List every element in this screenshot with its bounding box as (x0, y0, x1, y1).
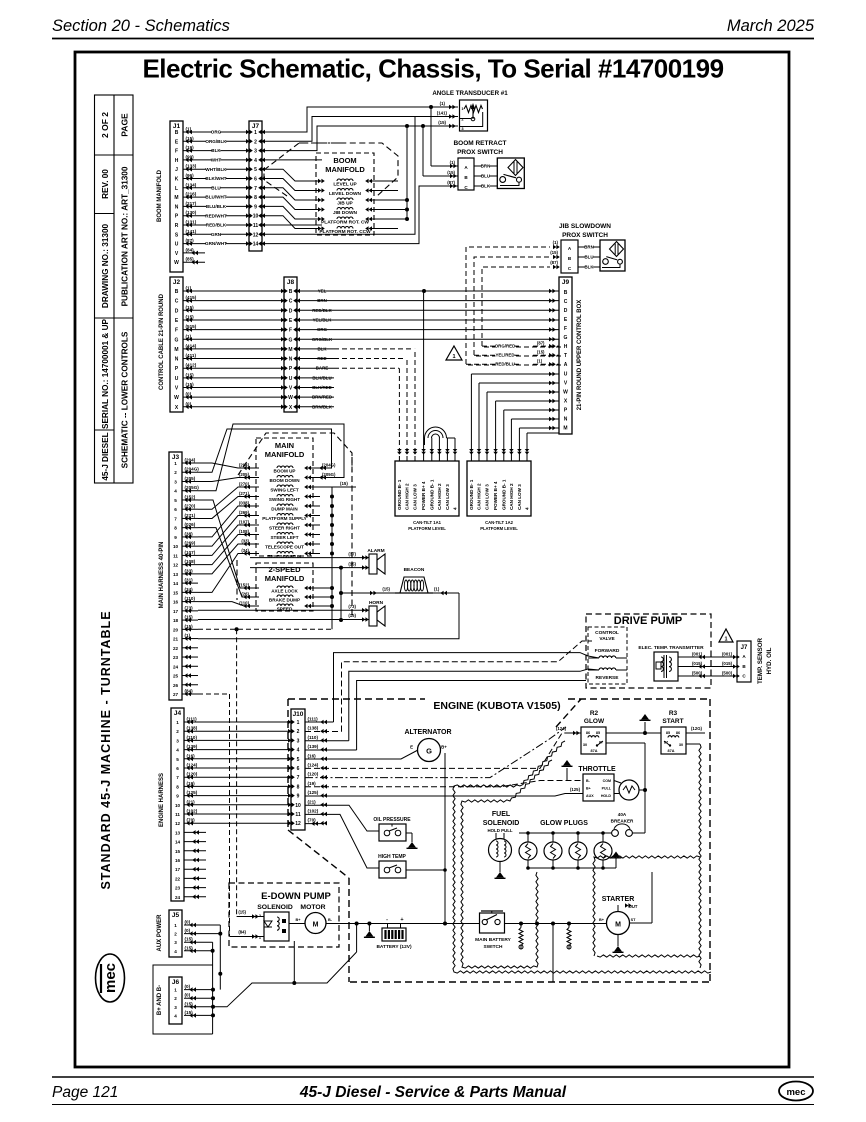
svg-text:M: M (288, 347, 292, 353)
svg-text:2: 2 (297, 729, 300, 735)
svg-text:X: X (289, 405, 293, 411)
svg-text:M: M (615, 922, 621, 929)
svg-text:(269): (269) (239, 510, 250, 515)
svg-text:(139): (139) (308, 744, 319, 749)
svg-text:(33): (33) (241, 539, 249, 544)
svg-text:F: F (564, 326, 567, 332)
svg-text:N: N (289, 357, 293, 363)
svg-text:ELEC. TEMP. TRANSMITTER: ELEC. TEMP. TRANSMITTER (638, 645, 704, 651)
svg-text:CAN LOW 3: CAN LOW 3 (517, 484, 522, 510)
svg-text:K: K (175, 177, 179, 183)
svg-text:27: 27 (173, 692, 179, 697)
svg-text:86: 86 (586, 731, 590, 735)
svg-text:J8: J8 (287, 279, 295, 286)
svg-text:PROX SWITCH: PROX SWITCH (457, 149, 503, 156)
svg-text:U: U (175, 376, 179, 382)
svg-text:1: 1 (297, 720, 300, 726)
svg-text:30: 30 (583, 743, 587, 747)
svg-text:15: 15 (173, 590, 179, 595)
svg-text:4: 4 (176, 748, 179, 753)
svg-text:R2: R2 (590, 710, 599, 717)
svg-text:V: V (175, 386, 179, 392)
svg-text:4: 4 (453, 507, 458, 510)
svg-text:BRAKE DUMP: BRAKE DUMP (269, 598, 300, 603)
svg-text:5: 5 (176, 757, 179, 762)
svg-text:JIB DOWN: JIB DOWN (333, 210, 358, 216)
svg-text:M: M (313, 922, 319, 929)
svg-text:(204): (204) (239, 463, 250, 468)
svg-text:J: J (175, 167, 178, 173)
svg-text:(21): (21) (187, 799, 196, 804)
svg-text:(0): (0) (185, 920, 191, 925)
svg-text:DUMP MAIN: DUMP MAIN (271, 507, 298, 512)
svg-text:BRN: BRN (481, 164, 491, 169)
svg-text:F: F (175, 149, 178, 155)
svg-text:(38): (38) (185, 531, 194, 536)
svg-text:V: V (564, 380, 568, 386)
svg-text:(73): (73) (185, 605, 194, 610)
svg-text:MANIFOLD: MANIFOLD (265, 450, 305, 459)
svg-text:U: U (289, 376, 293, 382)
svg-text:(204G): (204G) (322, 463, 336, 468)
svg-text:(19): (19) (186, 145, 195, 150)
svg-text:MAIN BATTERY: MAIN BATTERY (475, 937, 512, 943)
svg-text:PLATFORM SUPPLY: PLATFORM SUPPLY (262, 516, 306, 521)
svg-text:C: C (289, 299, 293, 305)
svg-text:GLOW PLUGS: GLOW PLUGS (540, 820, 588, 827)
svg-text:22: 22 (173, 646, 179, 651)
svg-text:(205G): (205G) (322, 472, 336, 477)
svg-text:SERIAL NO.: 14700001 & UP: SERIAL NO.: 14700001 & UP (101, 318, 110, 429)
svg-text:8: 8 (254, 195, 257, 201)
svg-text:A: A (568, 246, 572, 251)
svg-text:11: 11 (175, 812, 180, 817)
svg-text:SWING LEFT: SWING LEFT (270, 488, 299, 493)
svg-text:(31): (31) (185, 578, 194, 583)
svg-text:12: 12 (253, 232, 259, 238)
svg-text:DRAWING NO.: 31300: DRAWING NO.: 31300 (101, 223, 110, 308)
svg-text:2 OF 2: 2 OF 2 (100, 112, 110, 138)
svg-text:ALARM: ALARM (367, 548, 384, 554)
svg-text:MOTOR: MOTOR (300, 904, 325, 911)
svg-text:(15): (15) (186, 372, 195, 377)
svg-text:F: F (289, 328, 292, 334)
svg-text:(0): (0) (185, 984, 191, 989)
svg-text:J7: J7 (741, 645, 748, 651)
svg-text:BEACON: BEACON (404, 567, 425, 573)
svg-text:6: 6 (297, 766, 300, 772)
svg-text:5: 5 (297, 757, 300, 763)
svg-text:BLK: BLK (211, 148, 221, 153)
svg-text:9: 9 (254, 204, 257, 210)
svg-text:CONTROL: CONTROL (595, 630, 619, 636)
svg-text:B-: B- (586, 779, 591, 783)
svg-text:BOOM DOWN: BOOM DOWN (269, 478, 300, 483)
svg-text:7: 7 (176, 775, 179, 780)
svg-text:12: 12 (295, 821, 301, 827)
svg-text:7: 7 (254, 186, 257, 192)
svg-text:(15): (15) (537, 350, 545, 355)
svg-text:(138): (138) (308, 726, 319, 731)
svg-text:REV. 00: REV. 00 (101, 169, 110, 199)
svg-text:5: 5 (254, 167, 257, 173)
svg-text:E: E (175, 139, 179, 145)
svg-text:4: 4 (174, 1013, 177, 1018)
svg-text:MAIN HARNESS 40-PIN: MAIN HARNESS 40-PIN (159, 542, 165, 609)
svg-text:16: 16 (175, 858, 181, 863)
svg-text:C: C (564, 299, 568, 305)
svg-text:(102): (102) (308, 809, 319, 814)
svg-text:(015): (015) (722, 661, 733, 666)
svg-text:OIL PRESSURE: OIL PRESSURE (373, 817, 411, 823)
svg-text:85: 85 (596, 731, 600, 735)
svg-text:87A: 87A (591, 749, 598, 753)
svg-text:12: 12 (173, 563, 179, 568)
svg-text:MANIFOLD: MANIFOLD (325, 165, 365, 174)
svg-text:LEVEL DOWN: LEVEL DOWN (329, 191, 361, 197)
svg-text:H: H (564, 344, 568, 350)
svg-text:B: B (742, 664, 746, 669)
svg-text:P: P (175, 366, 179, 372)
svg-text:(1): (1) (440, 101, 446, 106)
svg-text:E: E (289, 318, 293, 324)
svg-text:(152): (152) (239, 583, 250, 588)
svg-text:B+: B+ (586, 787, 591, 791)
svg-text:W: W (174, 395, 179, 401)
svg-text:PULL: PULL (602, 787, 612, 791)
svg-text:2: 2 (174, 996, 177, 1001)
svg-text:(84): (84) (238, 930, 246, 935)
svg-text:Section 20 - Schematics: Section 20 - Schematics (52, 17, 230, 35)
svg-text:(111): (111) (308, 717, 319, 722)
svg-text:(15): (15) (382, 587, 390, 592)
svg-text:U: U (564, 371, 568, 377)
svg-text:(110): (110) (308, 735, 319, 740)
svg-text:GROUND B- 1: GROUND B- 1 (469, 479, 474, 510)
svg-text:CAN HIGH 2: CAN HIGH 2 (477, 483, 482, 510)
svg-text:2: 2 (254, 139, 257, 145)
svg-text:U: U (175, 242, 179, 248)
svg-text:2: 2 (174, 470, 177, 475)
svg-text:J7: J7 (252, 123, 260, 130)
svg-text:16: 16 (173, 600, 179, 605)
svg-text:(87): (87) (550, 260, 558, 265)
svg-text:6: 6 (174, 507, 177, 512)
svg-text:G: G (426, 747, 432, 756)
svg-text:ORG/RED: ORG/RED (495, 344, 516, 349)
svg-text:J10: J10 (293, 711, 304, 718)
svg-text:GRN/WHT: GRN/WHT (205, 241, 227, 246)
svg-text:(15): (15) (340, 481, 348, 486)
svg-text:1: 1 (176, 720, 179, 725)
svg-text:D: D (175, 308, 179, 314)
svg-text:11: 11 (253, 223, 259, 229)
svg-text:STEER LEFT: STEER LEFT (270, 535, 298, 540)
svg-text:CAN LOW 3: CAN LOW 3 (445, 484, 450, 510)
svg-text:SOLENOID: SOLENOID (483, 820, 520, 827)
svg-text:(1): (1) (537, 359, 543, 364)
svg-text:ALTERNATOR: ALTERNATOR (404, 729, 451, 736)
svg-text:B-: B- (328, 918, 333, 922)
svg-text:1: 1 (254, 130, 257, 136)
svg-text:ORG: ORG (211, 130, 222, 135)
svg-text:B: B (175, 289, 179, 295)
svg-text:(15): (15) (185, 624, 194, 629)
svg-text:M: M (174, 347, 178, 353)
svg-text:(87): (87) (186, 238, 195, 243)
svg-text:24: 24 (175, 895, 181, 900)
svg-text:L: L (175, 186, 178, 192)
svg-text:C: C (175, 299, 179, 305)
svg-text:V: V (175, 251, 179, 257)
svg-text:(73): (73) (348, 604, 356, 609)
svg-text:CAN HIGH 2: CAN HIGH 2 (405, 483, 410, 510)
svg-text:ENGINE HARNESS: ENGINE HARNESS (159, 773, 165, 827)
svg-text:MAIN: MAIN (275, 441, 294, 450)
svg-text:J9: J9 (562, 279, 570, 286)
svg-text:G: G (289, 337, 293, 343)
svg-text:BLK: BLK (584, 265, 594, 270)
svg-text:4: 4 (297, 748, 300, 754)
svg-text:45-J DIESEL: 45-J DIESEL (101, 432, 110, 480)
svg-text:(0): (0) (185, 993, 191, 998)
svg-text:STARTER: STARTER (602, 896, 635, 903)
svg-text:(84): (84) (186, 247, 195, 252)
svg-text:E: E (564, 317, 568, 323)
svg-text:(110): (110) (239, 601, 249, 606)
svg-text:PLATFORM LEVEL: PLATFORM LEVEL (480, 526, 518, 531)
svg-text:M: M (174, 195, 178, 201)
svg-text:(15): (15) (238, 910, 246, 915)
svg-text:2: 2 (176, 729, 179, 734)
svg-text:C: C (464, 185, 468, 190)
svg-text:J2: J2 (173, 279, 181, 286)
svg-text:40A: 40A (618, 812, 627, 817)
svg-text:PLATFORM ROT. CW: PLATFORM ROT. CW (321, 220, 369, 226)
svg-text:(16): (16) (187, 753, 196, 758)
svg-text:(84): (84) (185, 689, 194, 694)
svg-text:45-J Diesel - Service & Parts: 45-J Diesel - Service & Parts Manual (299, 1084, 567, 1101)
svg-text:(0): (0) (185, 928, 191, 933)
svg-text:SCHEMATIC -- LOWER CONTROLS: SCHEMATIC -- LOWER CONTROLS (121, 331, 130, 468)
svg-text:24: 24 (173, 664, 179, 669)
svg-text:21: 21 (173, 637, 179, 642)
svg-text:D: D (289, 308, 293, 314)
svg-text:F: F (175, 328, 178, 334)
svg-text:4: 4 (174, 949, 177, 954)
svg-text:9: 9 (176, 794, 179, 799)
svg-text:WHT: WHT (211, 158, 222, 163)
svg-text:14: 14 (253, 242, 259, 248)
svg-text:B+: B+ (441, 745, 447, 750)
svg-text:D: D (564, 308, 568, 314)
svg-text:25: 25 (173, 674, 179, 679)
svg-text:A: A (564, 362, 568, 368)
svg-text:6: 6 (176, 766, 179, 771)
svg-text:(19): (19) (187, 781, 196, 786)
svg-text:X: X (564, 398, 568, 404)
svg-text:13: 13 (175, 830, 181, 835)
svg-text:TELESCOPE IN: TELESCOPE IN (268, 554, 302, 559)
svg-text:VALVE: VALVE (599, 636, 615, 642)
svg-text:8: 8 (174, 526, 177, 531)
svg-text:J6: J6 (172, 979, 180, 986)
svg-text:X: X (175, 405, 179, 411)
svg-text:1: 1 (452, 354, 455, 360)
svg-text:3: 3 (174, 940, 177, 945)
svg-text:TELESCOPE OUT: TELESCOPE OUT (265, 545, 304, 550)
svg-text:2-SPEED: 2-SPEED (268, 565, 301, 574)
svg-text:PROX SWITCH: PROX SWITCH (562, 232, 608, 239)
svg-text:GROUND B- 1: GROUND B- 1 (501, 479, 506, 510)
svg-text:(125): (125) (570, 787, 581, 792)
svg-text:OUT: OUT (629, 904, 638, 909)
svg-text:1: 1 (174, 988, 177, 993)
svg-text:B: B (464, 175, 468, 180)
svg-text:CAN LOW 3: CAN LOW 3 (413, 484, 418, 510)
svg-text:23: 23 (175, 886, 181, 891)
svg-text:11: 11 (295, 812, 301, 818)
svg-text:HOLD PULL: HOLD PULL (487, 828, 512, 833)
svg-text:BRN: BRN (584, 245, 594, 250)
svg-text:21-PIN ROUND UPPER CONTROL BOX: 21-PIN ROUND UPPER CONTROL BOX (577, 300, 583, 411)
svg-text:AXLE LOCK: AXLE LOCK (271, 589, 298, 594)
svg-text:HIGH TEMP: HIGH TEMP (378, 854, 406, 860)
svg-text:(99): (99) (186, 154, 195, 159)
svg-text:N: N (175, 357, 179, 363)
svg-text:BLK: BLK (481, 184, 491, 189)
svg-text:85: 85 (666, 731, 670, 735)
svg-text:PLATFORM LEVEL: PLATFORM LEVEL (408, 526, 446, 531)
svg-text:(271): (271) (239, 491, 250, 496)
svg-text:+: + (400, 917, 403, 923)
svg-text:B+ AND B-: B+ AND B- (157, 985, 163, 1015)
svg-text:W: W (174, 260, 179, 266)
svg-text:DRIVE PUMP: DRIVE PUMP (614, 615, 682, 627)
svg-text:TEMP. SENSOR: TEMP. SENSOR (757, 637, 764, 683)
svg-text:(15): (15) (447, 170, 455, 175)
svg-text:8: 8 (176, 784, 179, 789)
svg-text:9: 9 (174, 535, 177, 540)
svg-text:CAN HIGH 2: CAN HIGH 2 (509, 483, 514, 510)
svg-text:22: 22 (175, 876, 181, 881)
svg-text:(001): (001) (722, 652, 733, 657)
svg-text:YEL/RED: YEL/RED (495, 353, 514, 358)
svg-text:(125): (125) (308, 790, 319, 795)
svg-text:3: 3 (176, 738, 179, 743)
svg-text:SOLENOID: SOLENOID (257, 904, 293, 911)
svg-text:B: B (289, 289, 293, 295)
svg-text:J5: J5 (172, 912, 180, 919)
svg-text:S: S (175, 232, 179, 238)
svg-text:BOOM MANIFOLD: BOOM MANIFOLD (157, 169, 163, 222)
svg-text:GRN: GRN (211, 232, 222, 237)
svg-text:BLK/WHT: BLK/WHT (205, 176, 226, 181)
svg-text:10: 10 (175, 803, 181, 808)
svg-text:1: 1 (174, 461, 177, 466)
svg-text:12: 12 (175, 821, 181, 826)
svg-text:(87): (87) (537, 341, 545, 346)
svg-text:(141): (141) (437, 111, 448, 116)
svg-text:A: A (464, 165, 468, 170)
svg-text:BOOM UP: BOOM UP (274, 469, 296, 474)
svg-text:(107): (107) (239, 520, 250, 525)
svg-text:W: W (288, 395, 293, 401)
svg-text:(70): (70) (308, 818, 317, 823)
svg-text:(87): (87) (447, 180, 455, 185)
svg-text:3: 3 (254, 149, 257, 155)
svg-text:(16): (16) (308, 753, 317, 758)
svg-text:(26): (26) (241, 592, 249, 597)
svg-text:B+: B+ (599, 918, 605, 922)
svg-text:1: 1 (724, 637, 727, 643)
svg-text:G: G (564, 335, 568, 341)
svg-text:(15): (15) (186, 382, 195, 387)
svg-text:ST: ST (631, 918, 637, 922)
svg-text:GROUND B- 1: GROUND B- 1 (429, 479, 434, 510)
svg-text:H: H (175, 158, 179, 164)
svg-text:BATTERY (12V): BATTERY (12V) (376, 944, 411, 950)
svg-text:PAGE: PAGE (120, 113, 130, 137)
svg-text:Electric Schematic, Chassis, T: Electric Schematic, Chassis, To Serial #… (142, 54, 723, 84)
svg-text:(15): (15) (348, 613, 356, 618)
svg-text:B: B (568, 256, 572, 261)
svg-text:R3: R3 (669, 710, 678, 717)
svg-text:9: 9 (297, 794, 300, 800)
svg-text:P: P (289, 366, 293, 372)
svg-text:CAN-TILT 1A1: CAN-TILT 1A1 (413, 520, 442, 525)
svg-text:E: E (410, 745, 413, 750)
svg-text:(85): (85) (186, 257, 195, 262)
svg-text:(34): (34) (185, 587, 194, 592)
svg-text:1: 1 (174, 923, 177, 928)
svg-text:RED/BLU: RED/BLU (495, 362, 515, 367)
svg-text:(1): (1) (434, 587, 440, 592)
svg-text:T: T (564, 353, 567, 359)
svg-text:4: 4 (254, 158, 257, 164)
svg-text:THROTTLE: THROTTLE (578, 766, 616, 773)
svg-text:SWING RIGHT: SWING RIGHT (269, 497, 300, 502)
svg-text:BLU/BLK: BLU/BLK (206, 204, 227, 209)
svg-text:10: 10 (173, 544, 179, 549)
svg-text:86: 86 (676, 731, 680, 735)
svg-text:CONTROL CABLE 21-PIN ROUND: CONTROL CABLE 21-PIN ROUND (159, 293, 165, 390)
svg-text:J1: J1 (173, 123, 181, 130)
svg-text:(270): (270) (239, 482, 250, 487)
svg-text:17: 17 (173, 609, 179, 614)
svg-text:MANIFOLD: MANIFOLD (265, 574, 305, 583)
svg-text:(37): (37) (348, 552, 356, 557)
svg-text:GLOW: GLOW (584, 718, 605, 725)
svg-text:10: 10 (253, 214, 259, 220)
svg-text:15: 15 (175, 849, 181, 854)
svg-text:BREAKER: BREAKER (611, 819, 634, 824)
svg-text:(1): (1) (553, 240, 559, 245)
svg-text:JIB UP: JIB UP (337, 201, 353, 207)
svg-text:(96): (96) (186, 173, 195, 178)
svg-text:ORG/BLK: ORG/BLK (205, 139, 227, 144)
svg-text:SWITCH: SWITCH (484, 944, 503, 950)
svg-text:B+: B+ (296, 918, 302, 922)
svg-text:STANDARD 45-J MACHINE - TURNT: STANDARD 45-J MACHINE - TURNTABLE (99, 610, 113, 889)
svg-text:11: 11 (173, 553, 178, 558)
svg-text:(34): (34) (241, 548, 249, 553)
svg-text:(038): (038) (239, 501, 250, 506)
svg-text:CAN HIGH 2: CAN HIGH 2 (437, 483, 442, 510)
svg-text:mec: mec (786, 1087, 805, 1098)
svg-text:BLU/WHT: BLU/WHT (205, 195, 226, 200)
svg-text:14: 14 (173, 581, 179, 586)
